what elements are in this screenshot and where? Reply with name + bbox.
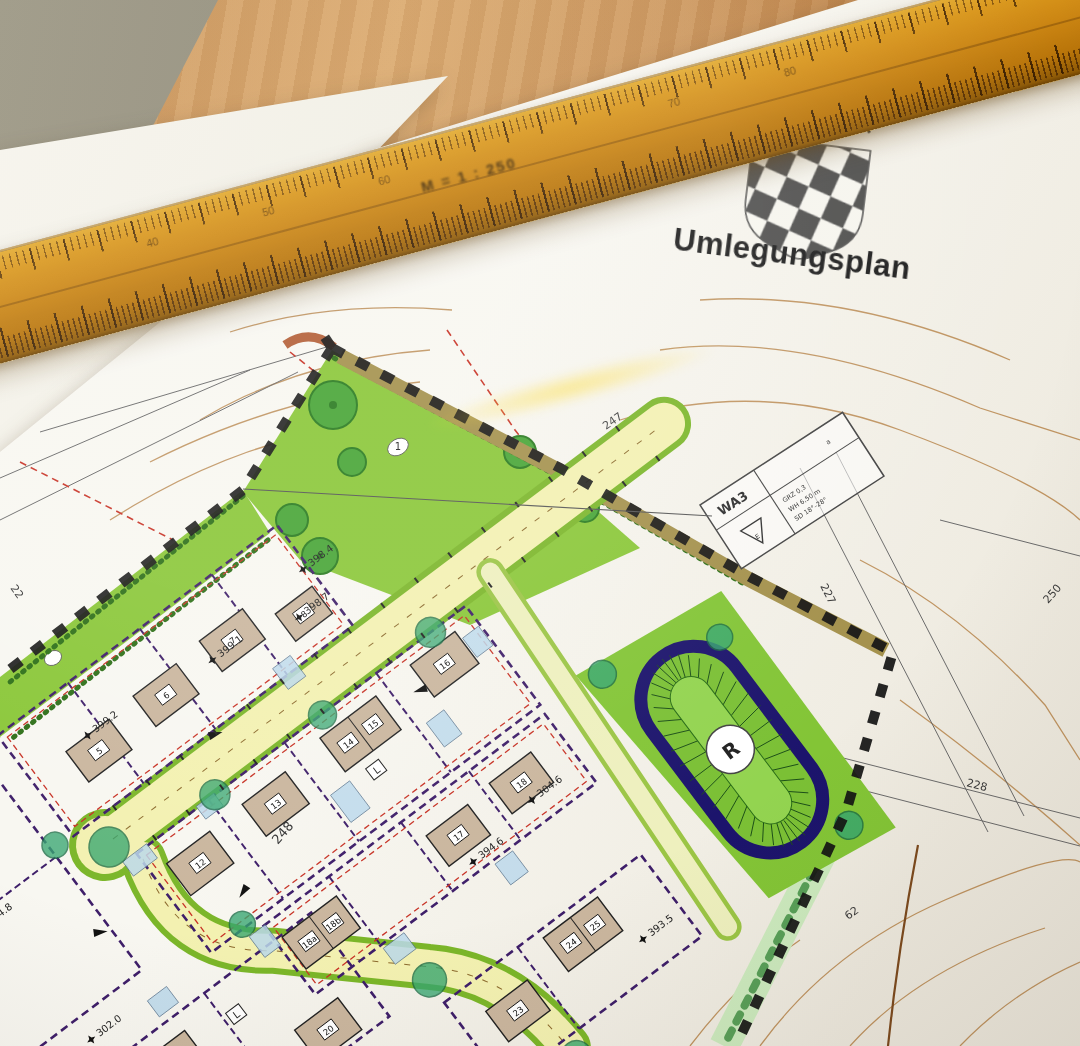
ruler-number: 50 [261, 204, 276, 219]
parcel-star [636, 932, 650, 946]
driveway [330, 781, 370, 823]
plot-divider [204, 993, 282, 1046]
street-tree [37, 827, 73, 863]
driveway [147, 986, 178, 1016]
oval-marker-text: 1 [395, 441, 401, 452]
parcel-star [84, 1032, 98, 1046]
contour-line-major [888, 845, 918, 1046]
driveway [426, 710, 462, 747]
ruler-number: 40 [145, 235, 160, 250]
parcel-number: 394.8 [0, 901, 14, 927]
terrain-label-227: 227 [817, 581, 838, 606]
parcel-number: 393.5 [646, 912, 675, 938]
terrain-label-228: 228 [965, 776, 989, 794]
photo-scene: 22 227 228 247 250 62 [0, 0, 1080, 1046]
ruler-number: 60 [377, 173, 392, 188]
orientation-arrow [236, 884, 250, 900]
legend-box: WA3 a E GRZ 0,3 WH 6,50 m SD 18°–28° [700, 412, 884, 568]
ruler-number: 80 [783, 64, 798, 79]
parcel-number: 302.0 [94, 1013, 123, 1039]
terrain-label-250: 250 [1041, 582, 1065, 606]
terrain-label-22: 22 [8, 582, 27, 601]
terrain-label-62: 62 [842, 904, 861, 923]
ruler-number: 70 [667, 95, 682, 110]
orientation-arrow [412, 684, 428, 696]
orientation-arrow [93, 927, 108, 937]
